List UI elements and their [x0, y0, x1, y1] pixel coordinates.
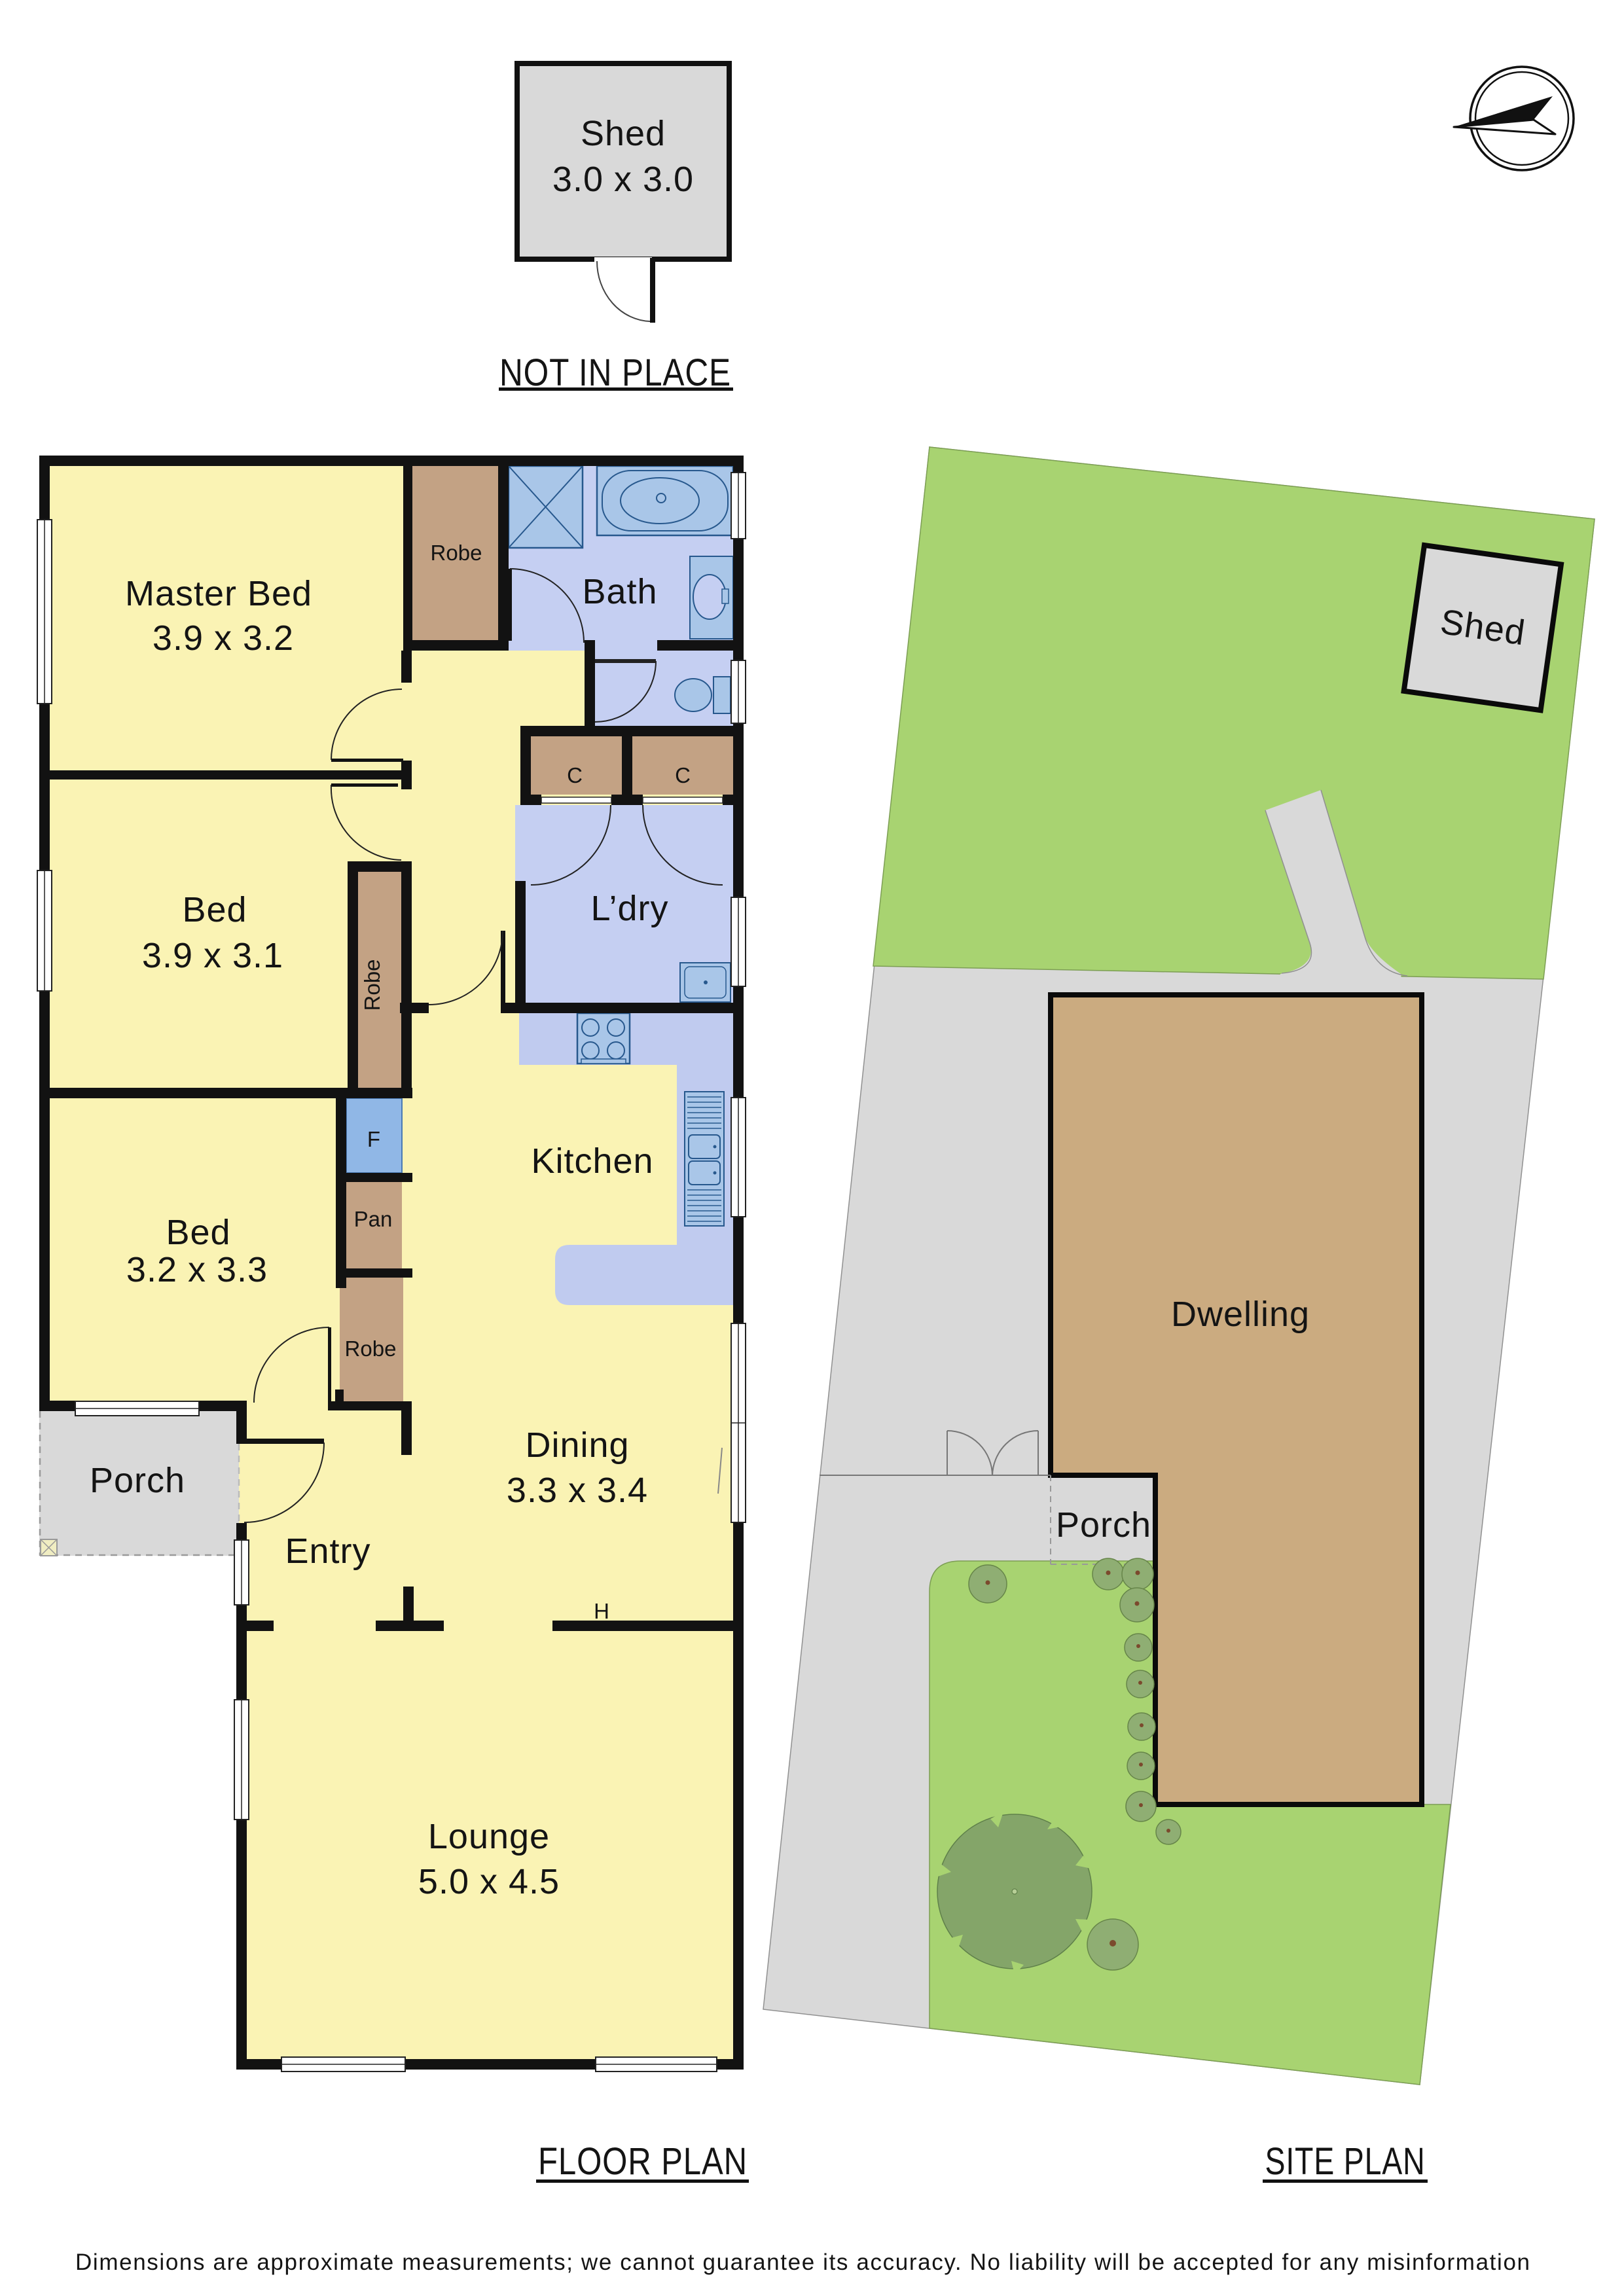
- svg-text:Porch: Porch: [1056, 1505, 1151, 1545]
- svg-text:Pan: Pan: [354, 1207, 393, 1231]
- svg-text:F: F: [367, 1127, 380, 1151]
- svg-text:Robe: Robe: [431, 541, 482, 565]
- svg-text:Robe: Robe: [360, 960, 384, 1011]
- svg-text:Bed: Bed: [182, 890, 247, 929]
- svg-text:5.0 x 4.5: 5.0 x 4.5: [418, 1862, 560, 1901]
- svg-text:Bath: Bath: [582, 572, 657, 611]
- svg-text:3.0 x 3.0: 3.0 x 3.0: [552, 160, 694, 199]
- svg-text:FLOOR PLAN: FLOOR PLAN: [538, 2140, 748, 2183]
- svg-text:3.2 x 3.3: 3.2 x 3.3: [126, 1250, 268, 1289]
- svg-text:C: C: [567, 763, 583, 787]
- svg-text:Dimensions are approximate mea: Dimensions are approximate measurements;…: [75, 2250, 1530, 2275]
- svg-text:Entry: Entry: [285, 1532, 370, 1571]
- svg-text:3.3 x 3.4: 3.3 x 3.4: [507, 1471, 648, 1510]
- svg-text:Kitchen: Kitchen: [531, 1141, 653, 1181]
- svg-text:3.9 x 3.1: 3.9 x 3.1: [142, 936, 283, 975]
- svg-text:Shed: Shed: [581, 114, 666, 153]
- svg-text:Robe: Robe: [345, 1336, 397, 1361]
- svg-text:Lounge: Lounge: [428, 1817, 550, 1856]
- svg-text:Master Bed: Master Bed: [125, 574, 312, 613]
- svg-text:Dwelling: Dwelling: [1171, 1295, 1310, 1334]
- svg-text:SITE PLAN: SITE PLAN: [1265, 2140, 1426, 2183]
- svg-text:C: C: [675, 763, 691, 787]
- svg-text:Porch: Porch: [90, 1461, 185, 1500]
- svg-text:H: H: [594, 1599, 609, 1623]
- svg-text:L’dry: L’dry: [590, 889, 668, 928]
- svg-text:Dining: Dining: [525, 1426, 629, 1465]
- svg-text:3.9 x 3.2: 3.9 x 3.2: [153, 619, 294, 658]
- svg-text:Bed: Bed: [166, 1213, 230, 1252]
